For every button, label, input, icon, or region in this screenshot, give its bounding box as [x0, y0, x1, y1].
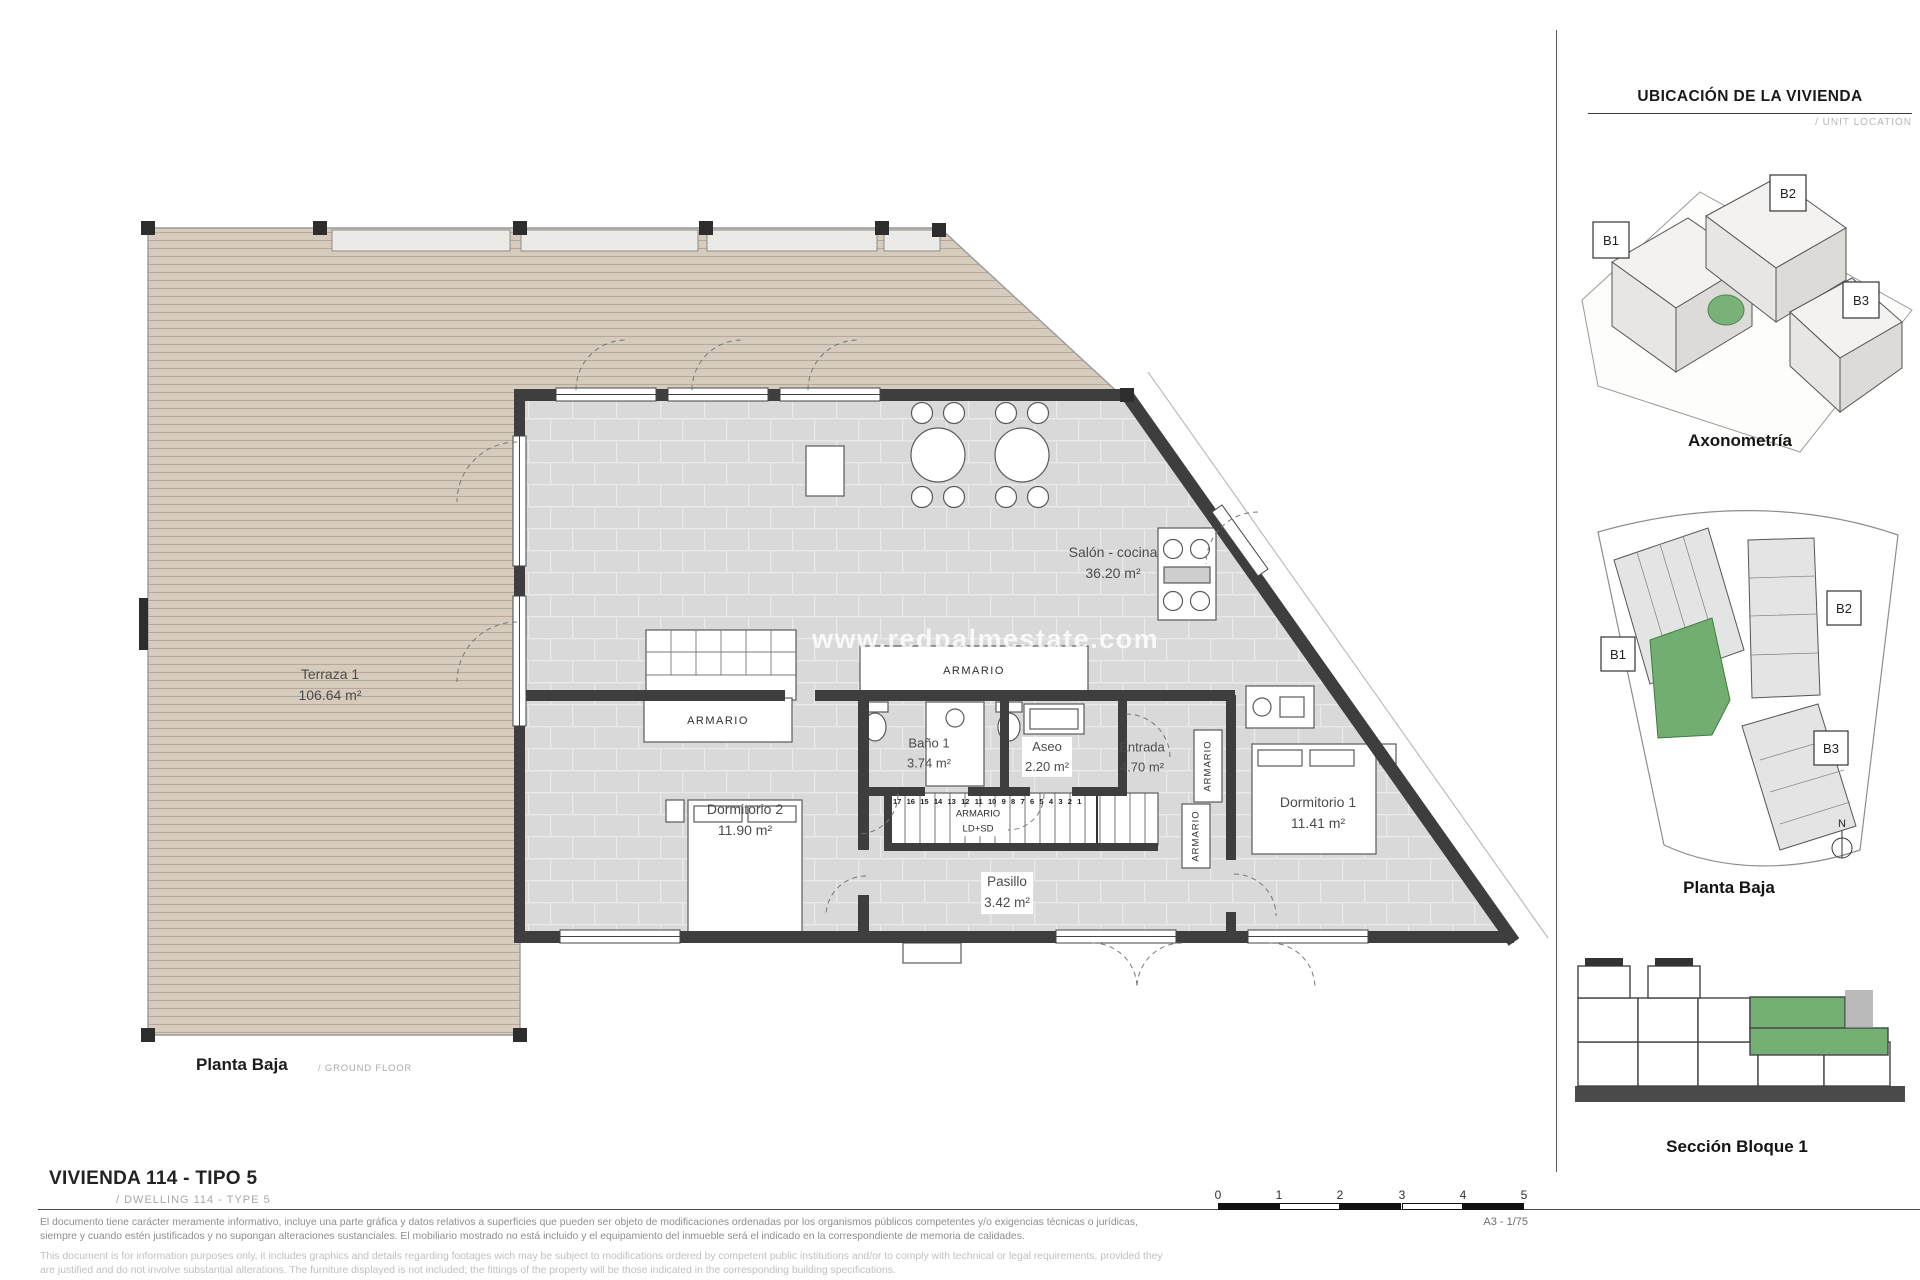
window-bottom-3 [1248, 930, 1368, 943]
room-label-pasillo: Pasillo 3.42 m² [981, 872, 1033, 914]
window-top-3 [780, 388, 880, 401]
sofa [646, 630, 796, 700]
room-area: 3.42 m² [981, 893, 1033, 914]
section-diagram [1575, 958, 1905, 1102]
room-area: 11.41 m² [1280, 813, 1356, 834]
window-left-1 [513, 436, 526, 566]
plan-caption: Planta Baja [196, 1055, 288, 1075]
room-area: 11.90 m² [707, 820, 783, 841]
axo-label-b3: B3 [1853, 293, 1869, 308]
scale-tick: 3 [1399, 1188, 1406, 1202]
room-area: 3.74 m² [907, 753, 951, 773]
wardrobe-label-entrada-1: ARMARIO [1203, 740, 1214, 791]
site-label-b2: B2 [1836, 601, 1852, 616]
sidebar-subtitle: / UNIT LOCATION [1588, 117, 1912, 128]
plan-sheet: B1 B2 B3 B1 B2 B3 N [0, 0, 1920, 1280]
wardrobe-label-salon: ARMARIO [943, 665, 1005, 677]
window-top-1 [556, 388, 656, 401]
room-name: Dormitorio 1 [1280, 792, 1356, 813]
axonometric-diagram: B1 B2 B3 [1582, 175, 1912, 452]
room-label-aseo: Aseo 2.20 m² [1022, 737, 1072, 777]
window-bottom-1 [560, 930, 680, 943]
siteplan-diagram: B1 B2 B3 N [1598, 511, 1898, 866]
caption-axonometria: Axonometría [1688, 431, 1792, 451]
room-name: Dormitorio 2 [707, 799, 783, 820]
exterior-step [903, 943, 961, 963]
scale-tick: 4 [1460, 1188, 1467, 1202]
axo-label-b1: B1 [1603, 233, 1619, 248]
wardrobe-label-line1: ARMARIO [953, 807, 1003, 822]
room-label-terraza: Terraza 1 106.64 m² [298, 664, 361, 706]
room-name: Salón - cocina [1069, 542, 1158, 563]
room-label-dorm1: Dormitorio 1 11.41 m² [1280, 792, 1356, 834]
window-left-2 [513, 596, 526, 726]
dwelling-subtitle: / DWELLING 114 - TYPE 5 [116, 1194, 271, 1206]
wardrobe-label-dorm2: ARMARIO [687, 715, 749, 727]
room-name: Pasillo [981, 872, 1033, 893]
axo-unit-highlight [1708, 295, 1744, 325]
room-name: Terraza 1 [298, 664, 361, 685]
scale-bar: 0 1 2 3 4 5 [1218, 1188, 1530, 1214]
room-area: 2.20 m² [1022, 757, 1072, 777]
site-block-b2 [1748, 538, 1820, 698]
wardrobe-label-ldsd: ARMARIO LD+SD [953, 807, 1003, 836]
dwelling-title: VIVIENDA 114 - TIPO 5 [49, 1168, 257, 1190]
sheet-reference: A3 - 1/75 [1440, 1216, 1528, 1228]
kitchen-sink [1246, 686, 1314, 728]
scale-tick: 1 [1276, 1188, 1283, 1202]
window-top-2 [668, 388, 768, 401]
room-label-salon: Salón - cocina 36.20 m² [1069, 542, 1158, 584]
cooktop [1158, 528, 1216, 620]
stair-numbers: 17 16 15 14 13 12 11 10 9 8 7 6 5 4 3 2 … [893, 797, 1155, 806]
room-area: 36.20 m² [1069, 563, 1158, 584]
north-letter: N [1838, 818, 1846, 830]
caption-seccion: Sección Bloque 1 [1666, 1137, 1808, 1157]
disclaimer-es: El documento tiene carácter meramente in… [40, 1216, 1164, 1243]
scale-tick: 2 [1337, 1188, 1344, 1202]
room-area: 106.64 m² [298, 685, 361, 706]
sidebar-divider [1556, 30, 1557, 1172]
site-label-b3: B3 [1823, 741, 1839, 756]
plan-caption-sub: / GROUND FLOOR [318, 1063, 412, 1074]
room-name: Aseo [1022, 737, 1072, 757]
axo-label-b2: B2 [1780, 186, 1796, 201]
watermark: www.redpalmestate.com [812, 624, 1159, 655]
room-name: Entrada [1119, 738, 1165, 758]
site-label-b1: B1 [1610, 647, 1626, 662]
scale-tick: 5 [1521, 1188, 1528, 1202]
pergola-bars [332, 230, 940, 251]
caption-planta-baja: Planta Baja [1683, 878, 1775, 898]
room-label-banyo: Baño 1 3.74 m² [907, 734, 951, 773]
sidebar-title: UBICACIÓN DE LA VIVIENDA [1588, 88, 1912, 114]
room-label-dorm2: Dormitorio 2 11.90 m² [707, 799, 783, 841]
room-area: 4.70 m² [1119, 757, 1165, 777]
sidebar-header: UBICACIÓN DE LA VIVIENDA / UNIT LOCATION [1588, 88, 1912, 128]
window-bottom-2 [1056, 930, 1176, 943]
wardrobe-label-line2: LD+SD [953, 822, 1003, 837]
footer-rule [38, 1209, 1920, 1210]
side-table [806, 446, 844, 496]
scale-tick: 0 [1215, 1188, 1222, 1202]
wardrobe-label-entrada-2: ARMARIO [1191, 810, 1202, 861]
section-hatch [1845, 990, 1873, 1028]
room-name: Baño 1 [907, 734, 951, 754]
room-label-entrada: Entrada 4.70 m² [1119, 738, 1165, 777]
disclaimer-en: This document is for information purpose… [40, 1250, 1164, 1277]
